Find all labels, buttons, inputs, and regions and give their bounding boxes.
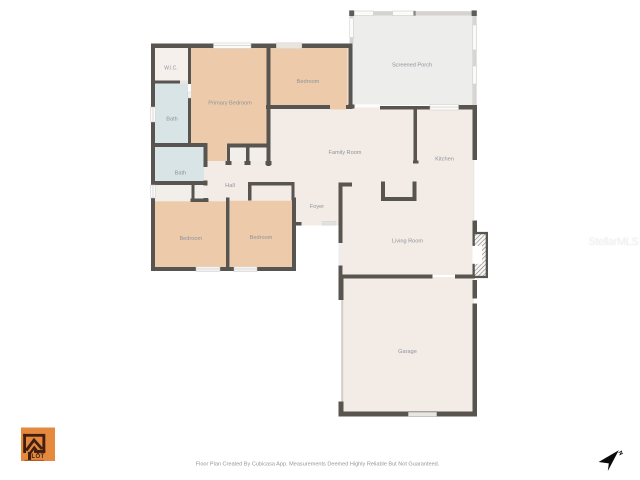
svg-text:Bedroom: Bedroom [179,236,202,242]
svg-text:Kitchen: Kitchen [435,157,454,163]
svg-text:Primary Bedroom: Primary Bedroom [208,101,252,107]
svg-text:Bath: Bath [175,171,187,177]
svg-text:Hall: Hall [225,183,235,189]
svg-text:Bedroom: Bedroom [297,79,320,85]
svg-text:Garage: Garage [398,349,417,355]
svg-text:StellarMLS: StellarMLS [589,236,639,248]
svg-text:Family Room: Family Room [329,150,362,156]
svg-text:LOT: LOT [32,454,45,460]
svg-text:Bath: Bath [166,117,178,123]
svg-text:Screened Porch: Screened Porch [392,63,432,69]
svg-text:Living Room: Living Room [392,239,423,245]
svg-text:Foyer: Foyer [310,204,324,210]
svg-text:Bedroom: Bedroom [250,235,273,241]
svg-text:Floor Plan Created By Cubicasa: Floor Plan Created By Cubicasa App. Meas… [196,462,440,468]
svg-text:W.I.C.: W.I.C. [164,66,178,72]
